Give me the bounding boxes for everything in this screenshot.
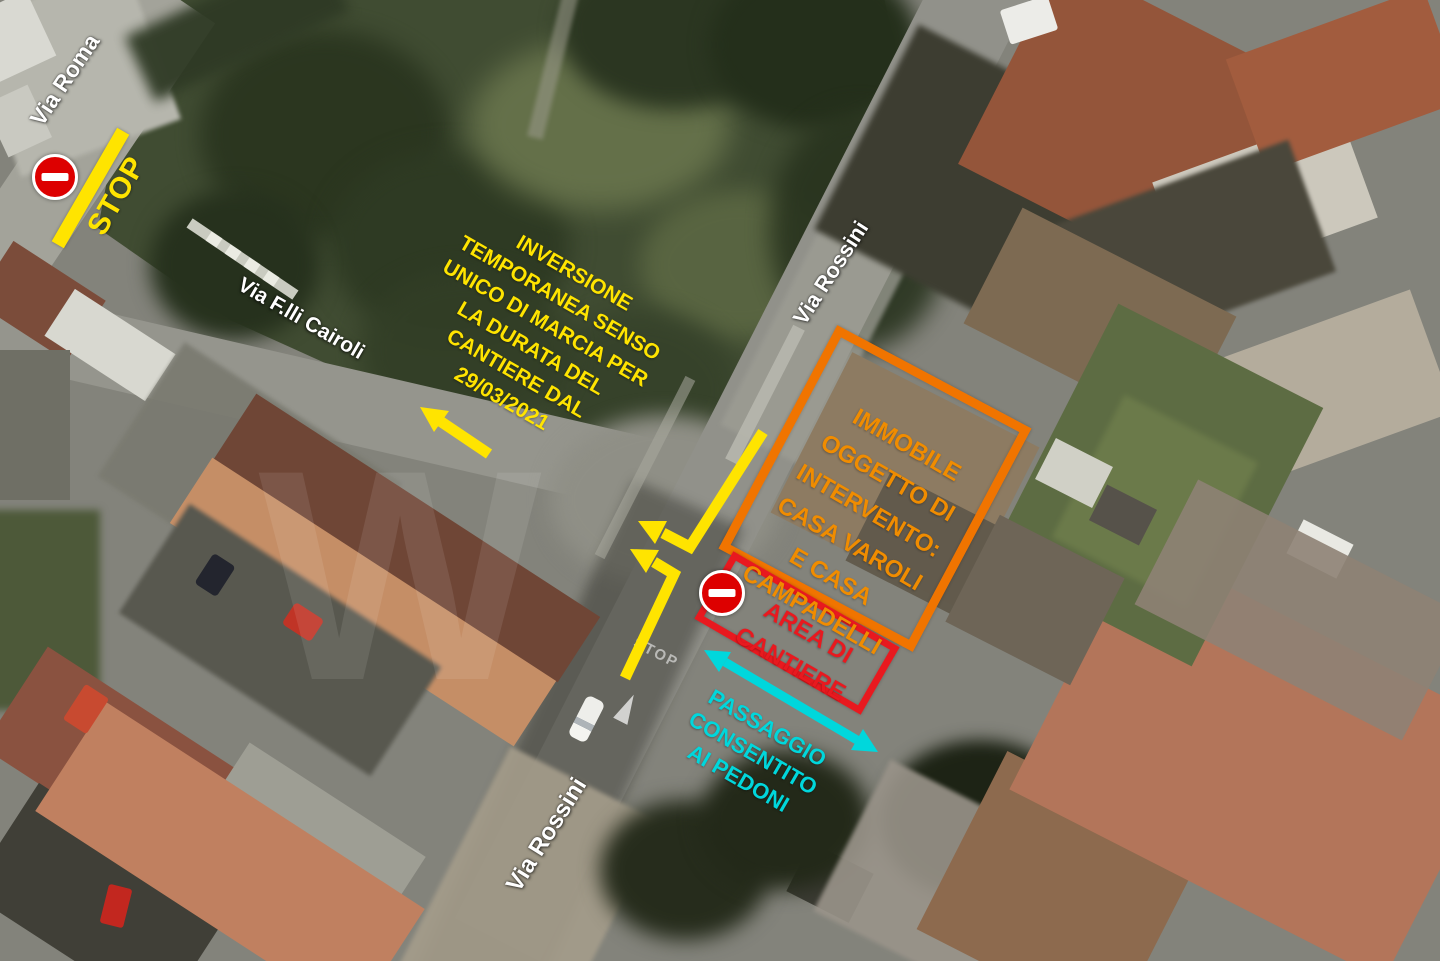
arrow-overlay — [0, 0, 1440, 961]
no-entry-icon — [699, 570, 745, 616]
construction-traffic-map: W Via Roma Via F.lli Cairoli Via Rossini… — [0, 0, 1440, 961]
lane-arrow-upper-head — [638, 521, 667, 544]
detour-arrow — [440, 421, 489, 454]
lane-arrow-lower — [625, 562, 674, 678]
lane-arrow-upper — [663, 432, 763, 547]
no-entry-icon — [32, 154, 78, 200]
